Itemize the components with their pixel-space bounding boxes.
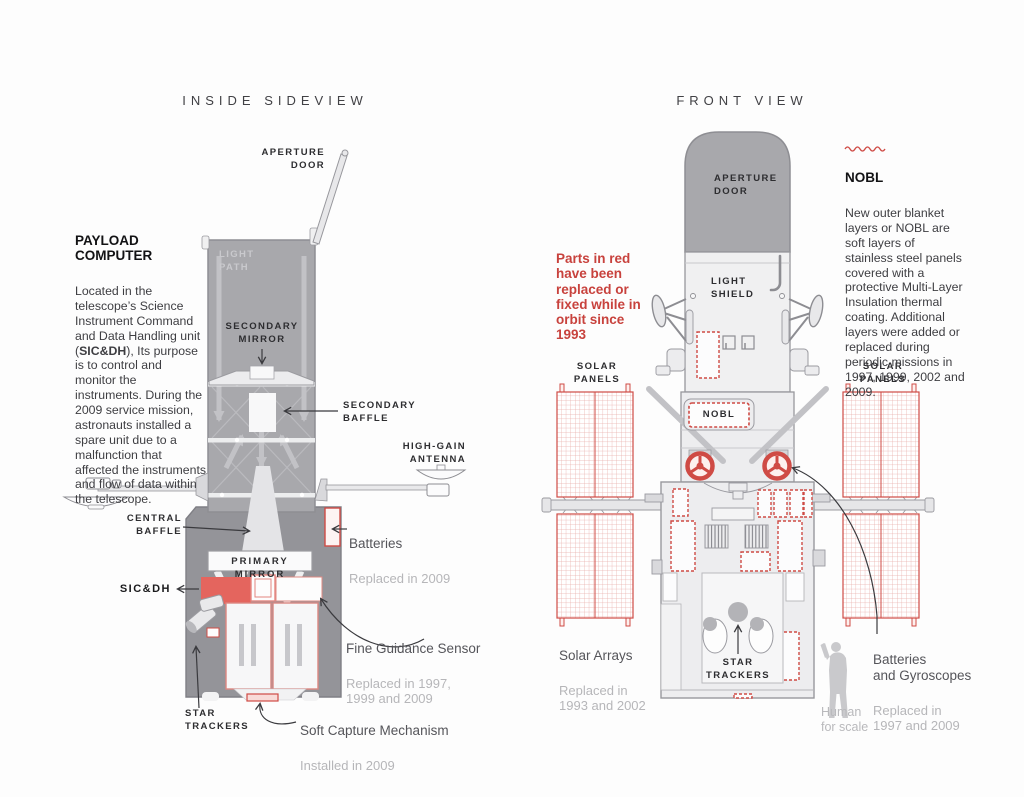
- annotation-human-scale: Human for scale: [821, 705, 891, 735]
- label-secondary-mirror: SECONDARY MIRROR: [222, 321, 302, 346]
- label-light-shield: LIGHT SHIELD: [711, 276, 787, 301]
- red-parts-note: Parts in red have been replaced or fixed…: [556, 251, 668, 343]
- label-secondary-baffle: SECONDARY BAFFLE: [343, 400, 433, 425]
- label-star-trackers-side: STAR TRACKERS: [185, 708, 255, 733]
- label-primary-mirror: PRIMARY MIRROR: [208, 556, 312, 581]
- annotation-solar-arrays-detail: Replaced in 1993 and 2002: [559, 683, 669, 714]
- annotation-batteries-detail: Replaced in 2009: [349, 571, 459, 586]
- label-solar-panels-left: SOLAR PANELS: [559, 361, 635, 386]
- hubble-infographic: INSIDE SIDEVIEW FRONT VIEW APERTURE DOOR…: [0, 0, 1024, 797]
- secondary-baffle-box: [249, 393, 276, 432]
- annotation-batteries: Batteries Replaced in 2009: [349, 518, 459, 604]
- forward-shell: [649, 389, 826, 482]
- label-aperture-door-side: APERTURE DOOR: [240, 147, 325, 172]
- payload-computer-body: Located in the telescope’s Science Instr…: [75, 284, 206, 507]
- payload-body-end: ), Its purpose is to control and monitor…: [75, 344, 206, 507]
- annotation-batteries-gyroscopes-title: Batteries and Gyroscopes: [873, 652, 983, 684]
- label-light-path: LIGHT PATH: [219, 249, 279, 274]
- payload-computer-heading: PAYLOAD COMPUTER: [75, 233, 206, 263]
- title-front-view: FRONT VIEW: [637, 93, 847, 108]
- batteries-box-side: [325, 508, 340, 546]
- nobl-heading: NOBL: [845, 170, 965, 185]
- annotation-soft-capture-detail: Installed in 2009: [300, 758, 460, 773]
- annotation-fine-guidance-detail: Replaced in 1997, 1999 and 2009: [346, 676, 481, 707]
- annotation-solar-arrays-title: Solar Arrays: [559, 648, 669, 664]
- label-star-trackers-front: STAR TRACKERS: [700, 657, 776, 682]
- annotation-fine-guidance-title: Fine Guidance Sensor: [346, 641, 481, 657]
- label-high-gain-antenna: HIGH-GAIN ANTENNA: [383, 441, 466, 466]
- payload-body-bold: SIC&DH: [79, 344, 126, 358]
- gyro-right: [765, 450, 790, 479]
- label-nobl-tag: NOBL: [689, 409, 749, 422]
- label-aperture-door-front: APERTURE DOOR: [714, 173, 790, 198]
- soft-capture-mechanism: [247, 694, 278, 701]
- high-gain-antenna-right: [315, 465, 465, 501]
- gyro-left: [688, 450, 713, 479]
- nobl-body: New outer blanket layers or NOBL are sof…: [845, 206, 965, 399]
- annotation-soft-capture-title: Soft Capture Mechanism: [300, 723, 460, 739]
- nobl-squiggle-icon: [845, 147, 885, 151]
- nobl-note: NOBL New outer blanket layers or NOBL ar…: [845, 152, 965, 417]
- annotation-solar-arrays: Solar Arrays Replaced in 1993 and 2002: [559, 630, 669, 732]
- label-sicdh: SIC&DH: [103, 583, 171, 595]
- annotation-batteries-title: Batteries: [349, 536, 459, 552]
- title-inside-sideview: INSIDE SIDEVIEW: [160, 93, 390, 108]
- light-shield: [685, 252, 790, 392]
- low-gain-antenna-right: [789, 294, 825, 375]
- annotation-soft-capture: Soft Capture Mechanism Installed in 2009: [300, 705, 460, 791]
- payload-computer-note: PAYLOAD COMPUTER Located in the telescop…: [75, 215, 206, 525]
